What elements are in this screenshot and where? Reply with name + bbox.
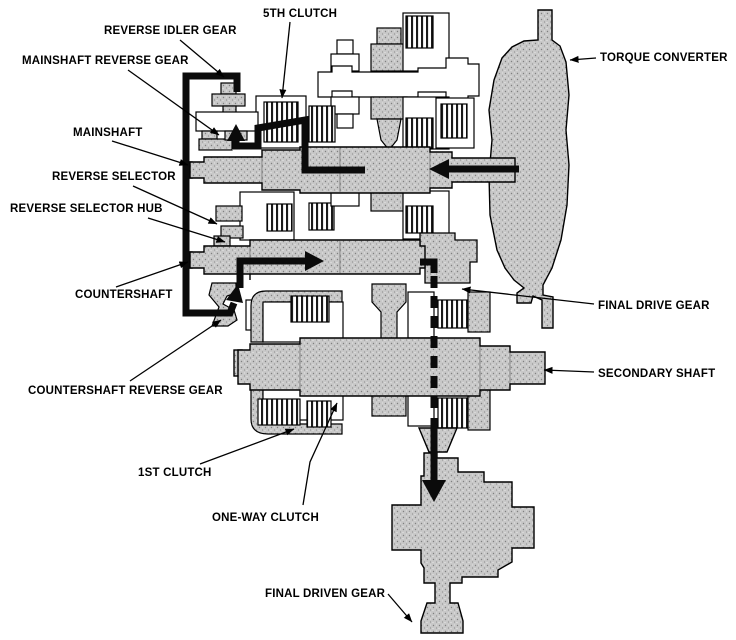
gear-block-bottom [371, 97, 407, 119]
label-reverse-selector-hub: REVERSE SELECTOR HUB [10, 203, 225, 242]
diff-funnel [419, 428, 457, 452]
leader-line [570, 58, 596, 60]
final-drive-gear-shape [420, 233, 477, 283]
leader-line [388, 594, 412, 622]
label-text: FINAL DRIVE GEAR [598, 300, 710, 312]
sec-housing-top [468, 292, 490, 332]
transmission-diagram-page: REVERSE IDLER GEAR 5TH CLUTCH MAINSHAFT … [0, 0, 736, 640]
clutch-hub-top [337, 40, 353, 54]
reverse-selector-assembly [214, 191, 449, 246]
selector-pack3 [406, 206, 433, 233]
label-text: SECONDARY SHAFT [598, 368, 715, 380]
label-text: 1ST CLUTCH [138, 467, 212, 479]
labels: REVERSE IDLER GEAR 5TH CLUTCH MAINSHAFT … [10, 8, 728, 622]
secondary-shaft-shape [238, 338, 545, 396]
clutch-pack-bottom [406, 118, 433, 148]
leader-line [112, 141, 188, 165]
leader-line [200, 429, 294, 464]
label-mainshaft: MAINSHAFT [73, 127, 188, 165]
mainshaft-reverse-gear-flange [199, 139, 232, 150]
selector-gray-block [371, 191, 407, 211]
leader-line [116, 262, 188, 287]
gear-block-top [377, 28, 401, 44]
reverse-selector-shape [216, 206, 242, 221]
label-text: REVERSE IDLER GEAR [104, 25, 237, 37]
reverse-gear-train [196, 83, 258, 150]
clutch-pack-right [441, 104, 467, 138]
sec-drum-top [408, 292, 434, 338]
selector-pack2 [309, 203, 334, 230]
fifth-clutch-pack2 [309, 106, 335, 142]
first-clutch-pack-bottom [258, 399, 300, 425]
label-text: COUNTERSHAFT [75, 289, 173, 301]
differential-group [392, 428, 534, 633]
selector-pack1 [267, 204, 292, 231]
label-text: REVERSE SELECTOR HUB [10, 203, 163, 215]
label-text: ONE-WAY CLUTCH [212, 512, 319, 524]
differential-shape [392, 453, 534, 633]
leader-line [128, 70, 219, 135]
idler-gear-face [196, 112, 258, 131]
label-text: REVERSE SELECTOR [52, 171, 176, 183]
transmission-diagram: REVERSE IDLER GEAR 5TH CLUTCH MAINSHAFT … [0, 0, 736, 640]
label-reverse-selector: REVERSE SELECTOR [52, 171, 217, 224]
label-torque-converter: TORQUE CONVERTER [570, 52, 728, 64]
label-text: MAINSHAFT REVERSE GEAR [22, 55, 189, 67]
upper-clutch-assembly [256, 13, 479, 150]
gear-funnel [377, 119, 401, 150]
label-text: COUNTERSHAFT REVERSE GEAR [28, 385, 223, 397]
leader-line [282, 22, 290, 98]
sec-pack-bottom [438, 398, 470, 428]
label-text: MAINSHAFT [73, 127, 143, 139]
label-secondary-shaft: SECONDARY SHAFT [544, 368, 715, 380]
clutch-hub-bottom2 [337, 114, 353, 128]
reverse-idler-flange [212, 94, 245, 106]
label-countershaft: COUNTERSHAFT [75, 262, 188, 301]
leader-line [544, 370, 594, 372]
label-final-driven-gear: FINAL DRIVEN GEAR [265, 588, 412, 622]
label-text: TORQUE CONVERTER [600, 52, 728, 64]
sec-pack-top [438, 300, 470, 328]
leader-line [130, 320, 221, 381]
clutch-pack-top [406, 16, 433, 48]
label-1st-clutch: 1ST CLUTCH [138, 429, 294, 479]
label-countershaft-reverse-gear: COUNTERSHAFT REVERSE GEAR [28, 320, 223, 397]
label-text: FINAL DRIVEN GEAR [265, 588, 386, 600]
label-text: 5TH CLUTCH [263, 8, 337, 20]
label-final-drive-gear: FINAL DRIVE GEAR [462, 289, 710, 312]
gear-block-top2 [371, 44, 407, 71]
first-clutch-pack-top [291, 296, 329, 322]
label-reverse-idler-gear: REVERSE IDLER GEAR [104, 25, 237, 77]
